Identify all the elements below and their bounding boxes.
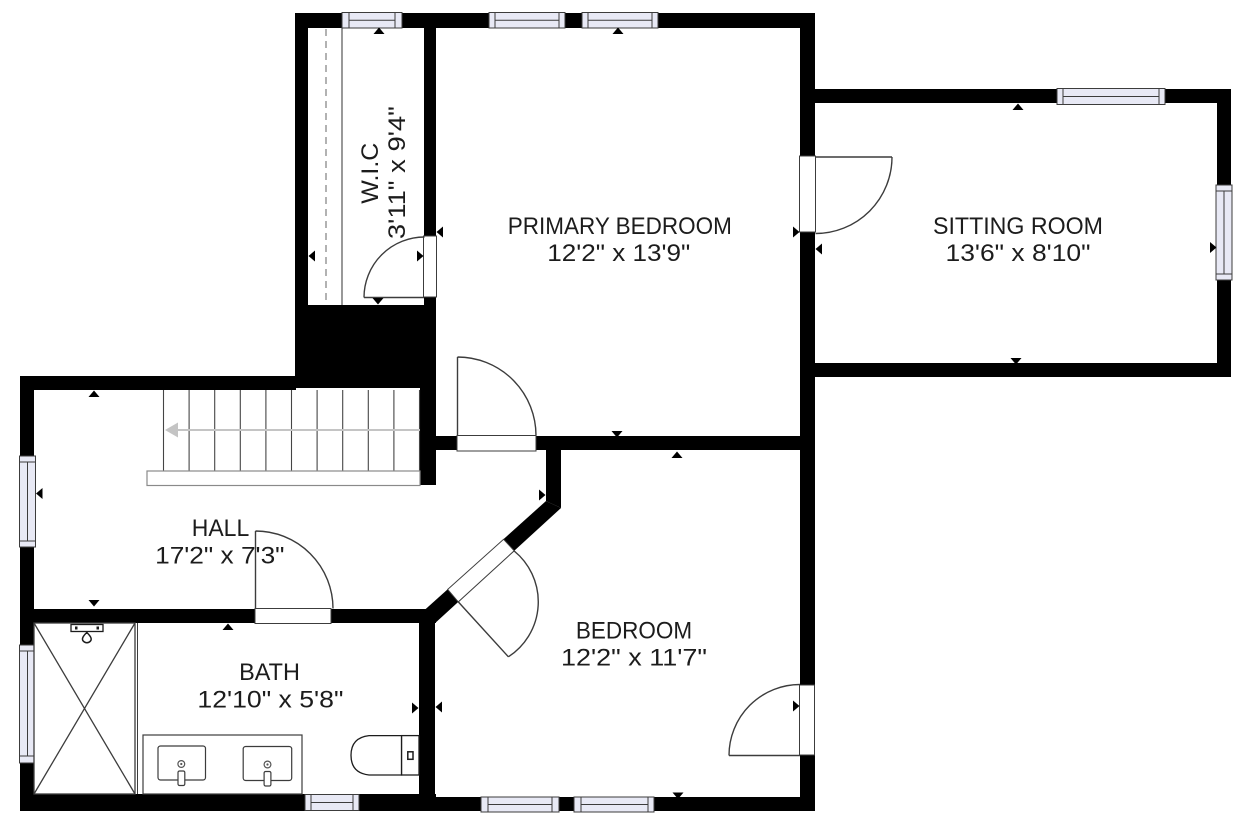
svg-text:3'11" x 9'4": 3'11" x 9'4" [384, 106, 411, 239]
svg-text:PRIMARY BEDROOM: PRIMARY BEDROOM [508, 213, 732, 240]
svg-text:12'2" x 11'7": 12'2" x 11'7" [561, 645, 707, 672]
svg-text:17'2" x 7'3": 17'2" x 7'3" [155, 542, 284, 569]
svg-text:W.I.C: W.I.C [357, 143, 384, 204]
svg-text:SITTING ROOM: SITTING ROOM [933, 213, 1103, 240]
svg-text:HALL: HALL [192, 515, 250, 542]
svg-text:12'10" x 5'8": 12'10" x 5'8" [197, 687, 343, 714]
svg-text:13'6" x 8'10": 13'6" x 8'10" [946, 240, 1091, 267]
svg-text:BATH: BATH [239, 659, 300, 686]
svg-text:BEDROOM: BEDROOM [576, 618, 692, 645]
svg-text:12'2" x 13'9": 12'2" x 13'9" [547, 240, 690, 267]
